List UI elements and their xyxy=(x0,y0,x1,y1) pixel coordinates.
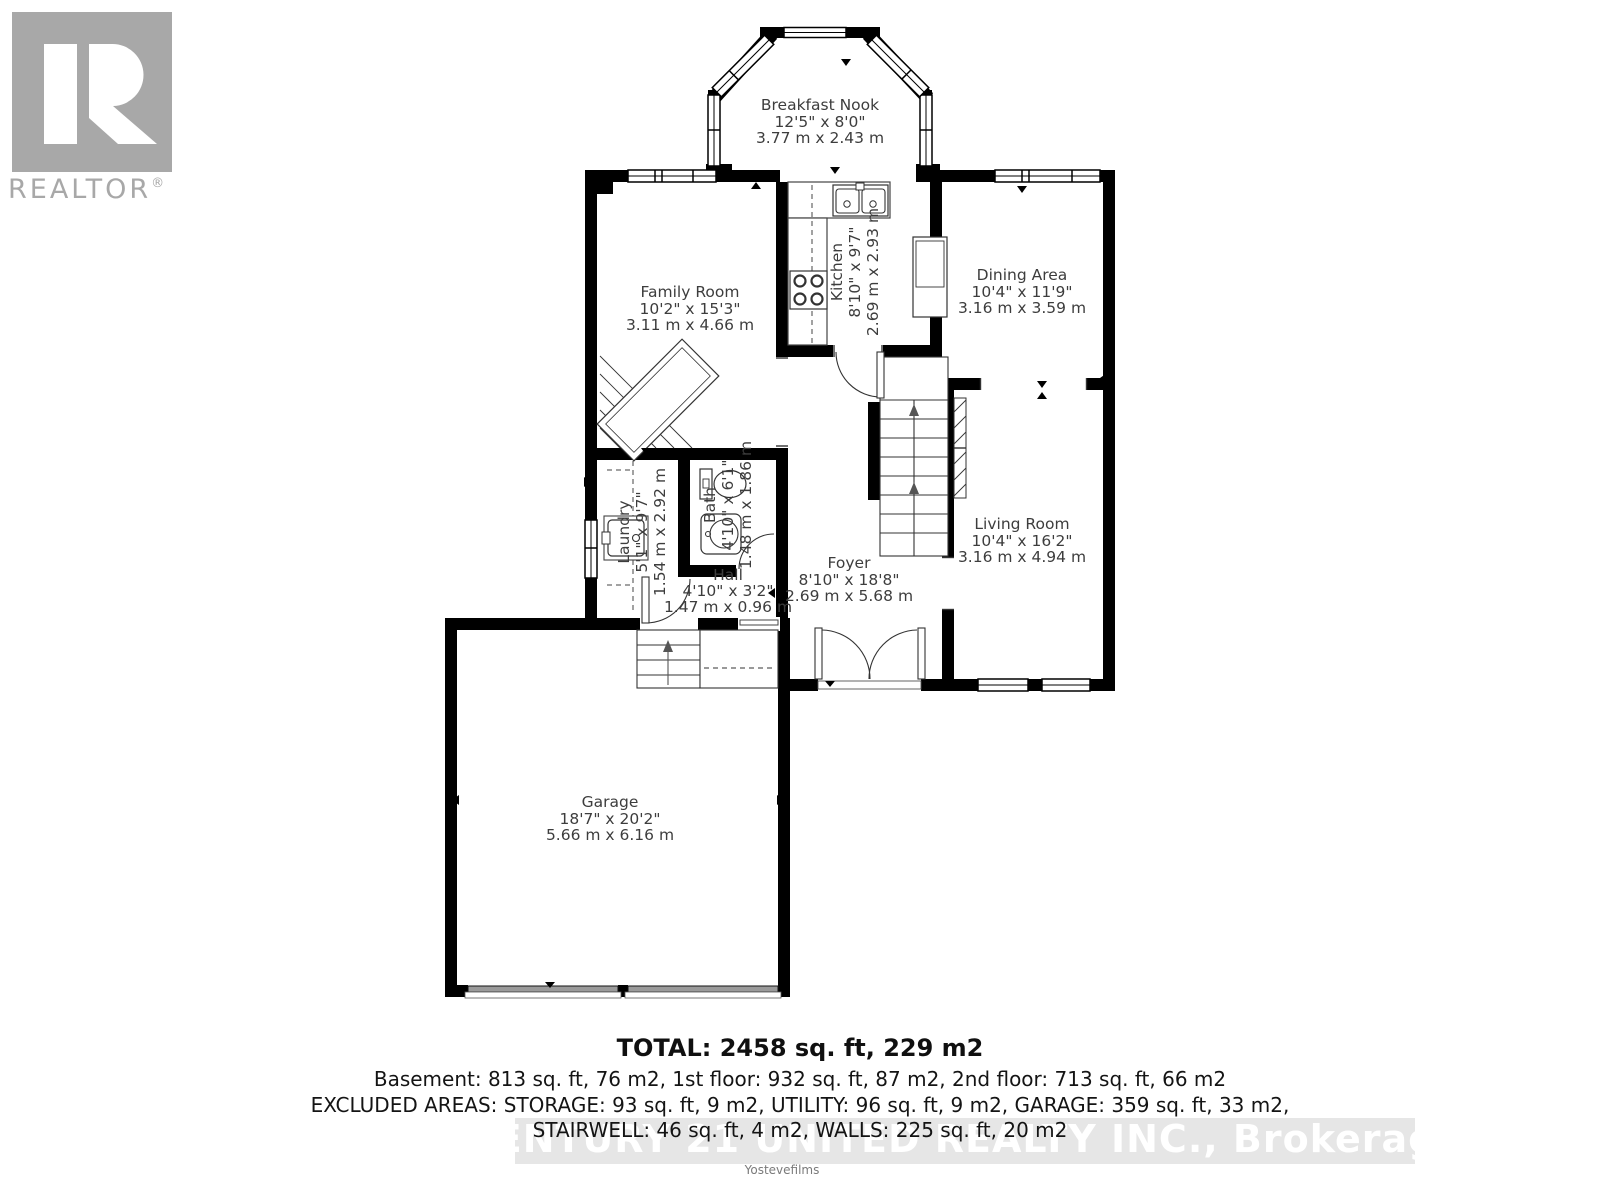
room-name: Kitchen xyxy=(828,243,846,301)
summary-total: TOTAL: 2458 sq. ft, 229 m2 xyxy=(617,1034,984,1062)
dimension-marker xyxy=(841,59,851,66)
wall xyxy=(445,618,457,997)
room-dim-metric: 3.16 m x 3.59 m xyxy=(958,299,1086,317)
summary-floors: Basement: 813 sq. ft, 76 m2, 1st floor: … xyxy=(374,1067,1226,1091)
label-dining-area: Dining Area 10'4" x 11'9" 3.16 m x 3.59 … xyxy=(958,266,1086,317)
garage-door-icon xyxy=(468,986,618,992)
window-icon xyxy=(995,170,1100,182)
window-icon xyxy=(708,95,720,166)
room-dim-metric: 1.54 m x 2.92 m xyxy=(651,468,669,596)
room-dim-metric: 3.77 m x 2.43 m xyxy=(756,129,884,147)
window-icon xyxy=(1042,679,1090,691)
wall xyxy=(778,618,790,997)
room-name: Family Room xyxy=(641,283,740,301)
dimension-marker xyxy=(1017,186,1027,193)
wall xyxy=(1103,170,1115,691)
garage-door-sill xyxy=(465,992,621,998)
dimension-marker xyxy=(830,167,840,174)
room-dim-metric: 5.66 m x 6.16 m xyxy=(546,826,674,844)
floor-plan: REALTOR® xyxy=(0,0,1600,1200)
label-family-room: Family Room 10'2" x 15'3" 3.11 m x 4.66 … xyxy=(626,283,754,334)
dimension-marker xyxy=(1037,392,1047,399)
window-icon xyxy=(920,95,932,166)
window-icon xyxy=(784,28,846,38)
label-living-room: Living Room 10'4" x 16'2" 3.16 m x 4.94 … xyxy=(958,515,1086,566)
room-dim-metric: 3.11 m x 4.66 m xyxy=(626,316,754,334)
refrigerator-icon xyxy=(913,237,947,317)
garage-door-icon xyxy=(628,986,778,992)
fireplace-icon xyxy=(597,339,719,461)
label-breakfast-nook: Breakfast Nook 12'5" x 8'0" 3.77 m x 2.4… xyxy=(756,96,884,147)
room-name: Laundry xyxy=(615,500,633,563)
staircase-icon xyxy=(880,357,948,556)
realtor-logo-r-stem xyxy=(44,44,77,144)
summary-excluded-1: EXCLUDED AREAS: STORAGE: 93 sq. ft, 9 m2… xyxy=(311,1093,1290,1117)
window-icon xyxy=(978,679,1028,691)
room-dim-imperial: 4'10" x 6'1" xyxy=(719,459,737,550)
room-name: Living Room xyxy=(974,515,1069,533)
room-dim-metric: 1.48 m x 1.86 m xyxy=(737,441,755,569)
window-icon xyxy=(628,170,716,182)
door-icon xyxy=(836,352,884,398)
label-foyer: Foyer 8'10" x 18'8" 2.69 m x 5.68 m xyxy=(785,554,913,605)
floor-plan-page: REALTOR® xyxy=(0,0,1600,1200)
cased-opening xyxy=(942,557,954,610)
closet xyxy=(700,630,778,688)
room-name: Breakfast Nook xyxy=(761,96,879,114)
summary-excluded-2: STAIRWELL: 46 sq. ft, 4 m2, WALLS: 225 s… xyxy=(533,1118,1068,1142)
wall xyxy=(868,402,880,500)
realtor-logo: REALTOR® xyxy=(8,12,172,205)
room-name: Garage xyxy=(582,793,639,811)
label-garage: Garage 18'7" x 20'2" 5.66 m x 6.16 m xyxy=(546,793,674,844)
wall xyxy=(776,182,788,357)
window-icon xyxy=(712,35,774,97)
cased-opening xyxy=(980,377,1087,391)
room-dim-metric: 2.69 m x 2.93 m xyxy=(864,208,882,336)
garage-door-sill xyxy=(625,992,781,998)
room-dim-imperial: 5'1" x 9'7" xyxy=(633,491,651,572)
dimension-marker xyxy=(751,182,761,189)
room-name: Bath xyxy=(701,487,719,523)
room-dim-metric: 3.16 m x 4.94 m xyxy=(958,548,1086,566)
room-dim-metric: 1.47 m x 0.96 m xyxy=(664,598,792,616)
sliding-door-icon xyxy=(740,620,778,625)
photographer-credit: Yostevefilms xyxy=(744,1163,820,1177)
cased-opening xyxy=(776,357,788,448)
room-dim-imperial: 8'10" x 9'7" xyxy=(846,226,864,317)
room-dim-metric: 2.69 m x 5.68 m xyxy=(785,587,913,605)
stove-icon xyxy=(790,271,827,309)
stair-railing-icon xyxy=(954,398,966,498)
label-kitchen: Kitchen 8'10" x 9'7" 2.69 m x 2.93 m xyxy=(828,208,882,336)
room-name: Dining Area xyxy=(977,266,1068,284)
window-icon xyxy=(585,520,597,578)
window-icon xyxy=(867,35,929,97)
door-opening xyxy=(833,344,883,358)
room-name: Foyer xyxy=(828,554,872,572)
basement-stairs-icon xyxy=(637,630,700,688)
realtor-logo-text: REALTOR® xyxy=(8,174,167,205)
